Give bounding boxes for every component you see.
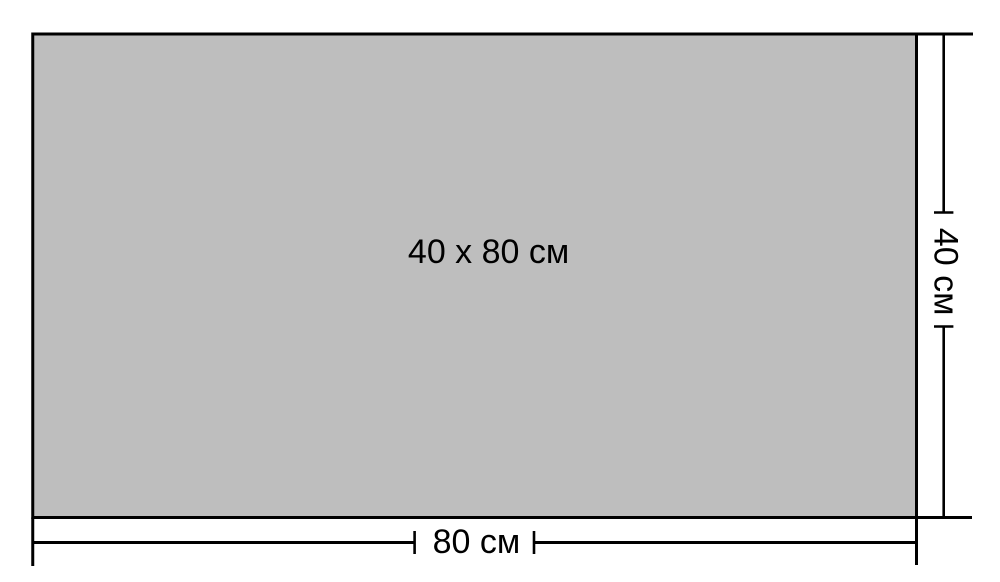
svg-text:80 см: 80 см xyxy=(433,523,521,561)
svg-text:40 см: 40 см xyxy=(927,228,965,316)
svg-text:40 x 80 см: 40 x 80 см xyxy=(408,233,569,271)
